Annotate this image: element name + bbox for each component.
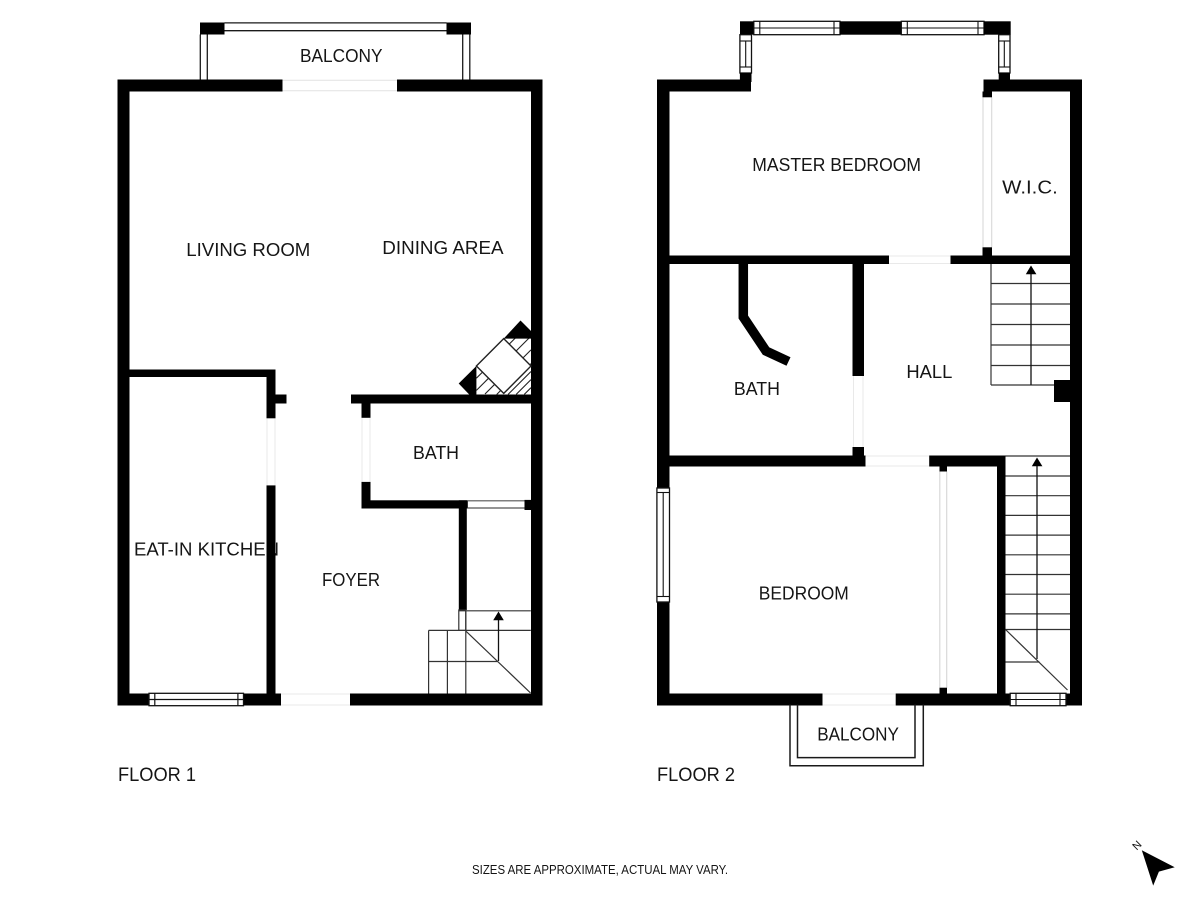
svg-text:BATH: BATH xyxy=(413,442,459,463)
svg-text:FLOOR 1: FLOOR 1 xyxy=(118,765,196,786)
svg-text:MASTER BEDROOM: MASTER BEDROOM xyxy=(752,154,921,175)
svg-text:FLOOR 2: FLOOR 2 xyxy=(657,765,735,786)
svg-text:BATH: BATH xyxy=(734,378,780,399)
svg-text:LIVING ROOM: LIVING ROOM xyxy=(186,239,310,260)
svg-text:HALL: HALL xyxy=(906,361,952,382)
svg-text:BALCONY: BALCONY xyxy=(300,45,383,66)
svg-text:EAT-IN KITCHEN: EAT-IN KITCHEN xyxy=(134,539,279,560)
svg-text:BALCONY: BALCONY xyxy=(817,724,899,745)
svg-text:W.I.C.: W.I.C. xyxy=(1002,177,1058,198)
svg-text:FOYER: FOYER xyxy=(322,569,380,590)
svg-text:SIZES ARE APPROXIMATE, ACTUAL: SIZES ARE APPROXIMATE, ACTUAL MAY VARY. xyxy=(472,862,728,877)
svg-text:BEDROOM: BEDROOM xyxy=(759,582,849,603)
svg-text:DINING AREA: DINING AREA xyxy=(382,237,504,258)
